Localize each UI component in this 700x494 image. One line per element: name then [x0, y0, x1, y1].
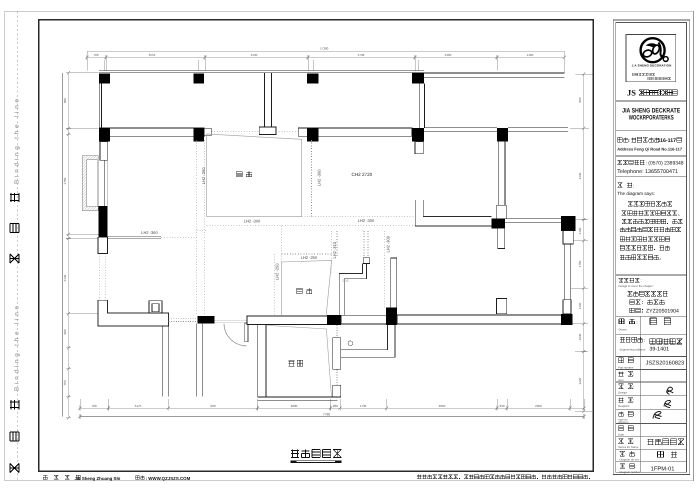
- svg-text:600: 600: [210, 404, 215, 408]
- svg-text:3130: 3130: [578, 172, 582, 179]
- svg-text:JSZS20160823: JSZS20160823: [646, 361, 685, 367]
- svg-text:750: 750: [63, 380, 67, 385]
- svg-text:LH2 -300: LH2 -300: [385, 235, 390, 252]
- svg-text:1460: 1460: [527, 53, 534, 57]
- svg-text:2220: 2220: [578, 377, 582, 384]
- svg-text:LH2 -360: LH2 -360: [141, 230, 158, 235]
- svg-text:The diagram says:: The diagram says:: [617, 191, 655, 196]
- svg-text:Date: Date: [618, 432, 624, 436]
- svg-text::: :: [629, 138, 630, 144]
- svg-text:2050: 2050: [439, 404, 446, 408]
- svg-text:Item: Item: [618, 378, 624, 382]
- svg-text:3460: 3460: [445, 53, 452, 57]
- svg-text:Engineering address: Engineering address: [620, 347, 646, 351]
- svg-text::: :: [633, 427, 634, 432]
- svg-text:Owner: Owner: [619, 328, 627, 332]
- svg-text:780: 780: [93, 53, 98, 57]
- svg-text:Jia Sheng Zhuang Shi: Jia Sheng Zhuang Shi: [75, 476, 121, 481]
- svg-text::: :: [633, 386, 634, 391]
- svg-text:39-1401: 39-1401: [649, 347, 669, 353]
- svg-text:LH2 -250: LH2 -250: [301, 255, 318, 260]
- svg-text:3534: 3534: [149, 53, 156, 57]
- svg-text::: :: [633, 399, 634, 404]
- svg-text:1750: 1750: [578, 260, 582, 267]
- svg-text:efficiency: efficiency: [618, 421, 629, 424]
- svg-text:780: 780: [91, 404, 96, 408]
- svg-text:Design: Design: [618, 390, 627, 394]
- svg-text:Series for Name: Series for Name: [618, 445, 639, 449]
- svg-text::: :: [644, 339, 645, 344]
- svg-text::: :: [633, 413, 634, 418]
- svg-text:3130: 3130: [251, 53, 258, 57]
- svg-text:1730: 1730: [360, 404, 367, 408]
- svg-text:280: 280: [333, 404, 338, 408]
- svg-text:800: 800: [578, 97, 582, 102]
- svg-text:116-117: 116-117: [658, 138, 677, 144]
- svg-text::: :: [636, 320, 637, 326]
- svg-text:1030: 1030: [578, 333, 582, 340]
- svg-text:CH2 2720: CH2 2720: [352, 172, 373, 177]
- svg-text:2100: 2100: [578, 227, 582, 234]
- svg-text:2.35: 2.35: [342, 279, 349, 283]
- svg-text:3738: 3738: [358, 53, 365, 57]
- svg-text::: :: [633, 359, 634, 364]
- svg-text:JS: JS: [627, 88, 636, 97]
- svg-text:Binding the line: Binding the line: [14, 96, 21, 184]
- svg-text:WOCKRPORATERKS: WOCKRPORATERKS: [629, 115, 675, 122]
- svg-text:Part number: Part number: [618, 365, 633, 369]
- svg-text:800: 800: [63, 98, 67, 103]
- svg-text:: WWW.QZJSZS.COM: : WWW.QZJSZS.COM: [146, 476, 191, 481]
- svg-text:LH2 -310: LH2 -310: [332, 241, 337, 258]
- svg-text:LH2 -300: LH2 -300: [244, 219, 261, 224]
- svg-text:J.A SHENG DECORATION: J.A SHENG DECORATION: [632, 64, 672, 68]
- svg-text:17380: 17380: [320, 47, 329, 51]
- svg-text::: :: [641, 278, 642, 283]
- svg-text:980: 980: [63, 329, 67, 334]
- svg-text:Graphics: Graphics: [618, 404, 630, 408]
- svg-text:Binding the line: Binding the line: [14, 303, 21, 391]
- svg-text:: (0570) 2389348: : (0570) 2389348: [646, 161, 684, 167]
- svg-text:2750: 2750: [63, 177, 67, 184]
- svg-text::: :: [633, 373, 634, 378]
- svg-text:Telephone: 13655700471: Telephone: 13655700471: [617, 169, 678, 175]
- svg-text:2050: 2050: [535, 404, 542, 408]
- svg-text:1FPM-01: 1FPM-01: [651, 465, 675, 472]
- svg-text:Diagram do not: Diagram do not: [620, 458, 639, 462]
- svg-text:ZYZ20501904: ZYZ20501904: [646, 309, 679, 315]
- svg-text:7780: 7780: [323, 412, 330, 416]
- svg-text:LH2 -300: LH2 -300: [358, 218, 375, 223]
- svg-text:JIA SHENG DECKRATE: JIA SHENG DECKRATE: [622, 108, 681, 115]
- svg-text:3175: 3175: [135, 404, 142, 408]
- svg-text:390: 390: [499, 404, 504, 408]
- svg-text:3140: 3140: [63, 274, 67, 281]
- svg-text::: :: [633, 184, 634, 190]
- svg-text:LH2 -360: LH2 -360: [201, 167, 206, 184]
- svg-text:1330: 1330: [578, 302, 582, 309]
- svg-text:Diagram number: Diagram number: [620, 470, 641, 474]
- svg-text:2800: 2800: [291, 404, 298, 408]
- svg-text:LH2 -250: LH2 -250: [274, 263, 279, 280]
- svg-text:Design to cover the chapter:: Design to cover the chapter:: [619, 284, 654, 288]
- svg-text:LH2 -300: LH2 -300: [317, 169, 322, 186]
- svg-text:Address Feng Qi Road No.116-11: Address Feng Qi Road No.116-117: [617, 146, 683, 151]
